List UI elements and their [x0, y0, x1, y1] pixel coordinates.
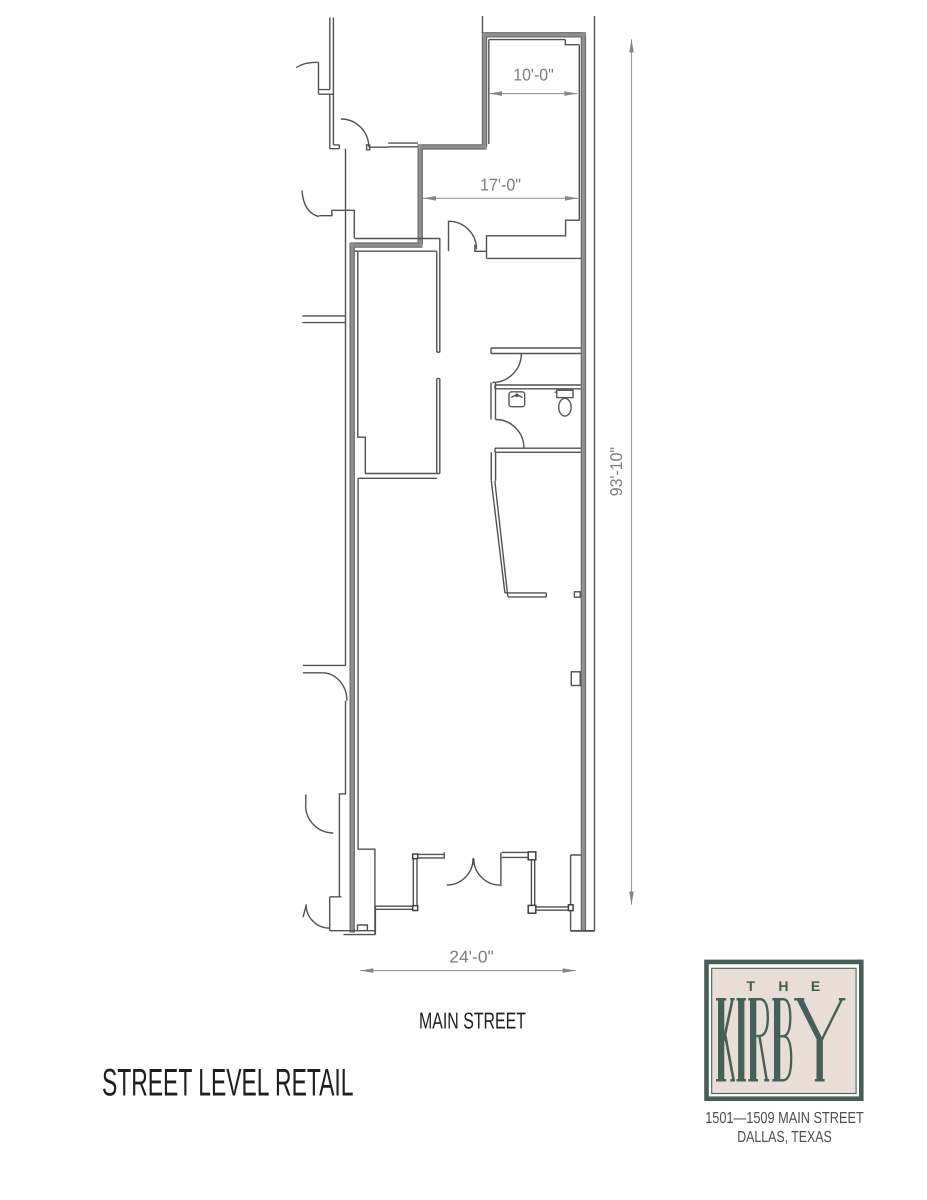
svg-text:24'-0": 24'-0" [449, 948, 494, 967]
svg-text:10'-0": 10'-0" [513, 66, 554, 85]
svg-text:93'-10": 93'-10" [607, 447, 626, 496]
svg-text:1501—1509 MAIN STREET: 1501—1509 MAIN STREET [705, 1110, 864, 1127]
svg-text:STREET LEVEL RETAIL: STREET LEVEL RETAIL [102, 1062, 354, 1105]
svg-text:MAIN STREET: MAIN STREET [419, 1008, 526, 1034]
svg-text:E: E [811, 978, 820, 994]
svg-text:17'-0": 17'-0" [480, 176, 521, 195]
svg-text:DALLAS, TEXAS: DALLAS, TEXAS [737, 1129, 832, 1146]
svg-text:T: T [747, 978, 756, 994]
svg-text:H: H [778, 978, 788, 994]
